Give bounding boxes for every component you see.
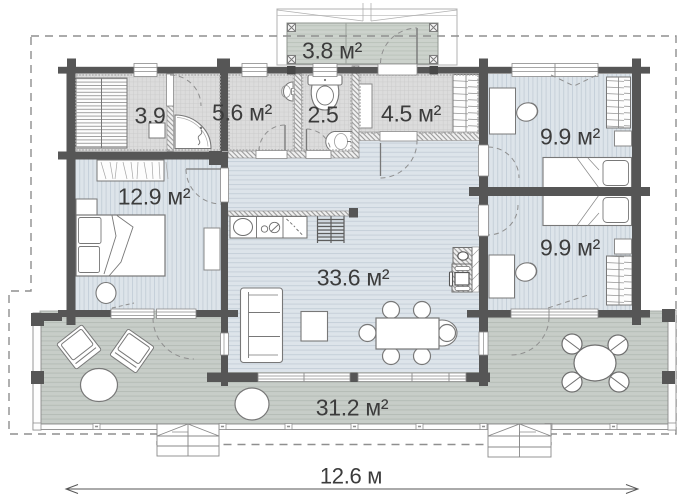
svg-text:2.5: 2.5 <box>307 102 338 128</box>
svg-text:12.6 м: 12.6 м <box>320 464 382 489</box>
svg-text:9.9 м²: 9.9 м² <box>540 235 601 261</box>
svg-text:9.9 м²: 9.9 м² <box>540 124 601 150</box>
svg-text:3.9: 3.9 <box>134 103 165 129</box>
svg-text:33.6 м²: 33.6 м² <box>317 265 390 291</box>
svg-text:12.9 м²: 12.9 м² <box>118 184 191 210</box>
svg-text:5.6 м²: 5.6 м² <box>212 100 273 126</box>
svg-text:31.2 м²: 31.2 м² <box>316 395 389 421</box>
svg-text:3.8 м²: 3.8 м² <box>302 38 363 64</box>
svg-text:4.5 м²: 4.5 м² <box>381 101 442 127</box>
